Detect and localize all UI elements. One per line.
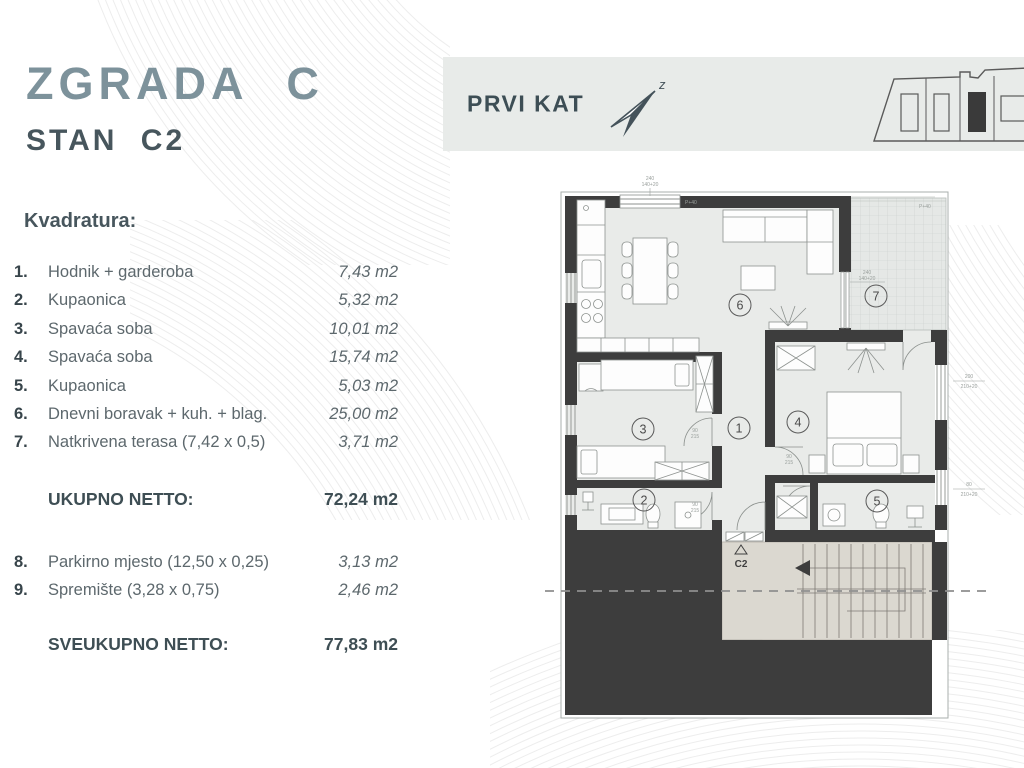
room-area: 5,03 m2 (338, 377, 398, 396)
room-name: Parkirno mjesto (12,50 x 0,25) (48, 553, 338, 572)
room-name: Natkrivena terasa (7,42 x 0,5) (48, 433, 338, 452)
floor-label: PRVI KAT (467, 91, 584, 118)
mirror-2 (583, 492, 593, 502)
washer-5 (823, 504, 845, 526)
room-area: 10,01 m2 (329, 320, 398, 339)
svg-text:6: 6 (737, 299, 744, 313)
room-number: 4. (14, 348, 48, 367)
svg-text:215: 215 (691, 434, 700, 440)
room-name: Kupaonica (48, 291, 338, 310)
room-number: 7. (14, 433, 48, 452)
room-area: 15,74 m2 (329, 348, 398, 367)
net-total-value: 72,24 m2 (324, 489, 398, 510)
room-name: Spremište (3,28 x 0,75) (48, 581, 338, 600)
room-area: 2,46 m2 (338, 581, 398, 600)
svg-text:1: 1 (736, 422, 743, 436)
highlighted-unit-window (968, 92, 986, 132)
svg-text:P+40: P+40 (919, 204, 931, 210)
room-name: Kupaonica (48, 377, 338, 396)
room-area: 5,32 m2 (338, 291, 398, 310)
apartment-title: STAN C2 (26, 124, 398, 158)
coffee-table (741, 266, 775, 290)
floor-header-band: PRVI KAT z (443, 57, 1024, 151)
svg-text:5: 5 (874, 495, 881, 509)
room-name: Hodnik + garderoba (48, 263, 338, 282)
svg-text:140+20: 140+20 (642, 182, 659, 188)
floor-plan: C2 1 2 3 4 5 6 7 240 140+20 240 140+20 2… (545, 170, 1024, 730)
north-arrow-icon: z (593, 69, 673, 149)
svg-text:210+20: 210+20 (961, 492, 978, 498)
north-letter: z (658, 77, 666, 92)
room-list: 1. Hodnik + garderoba 7,43 m2 2. Kupaoni… (14, 263, 398, 462)
room-row: 7. Natkrivena terasa (7,42 x 0,5) 3,71 m… (14, 433, 398, 461)
room-name: Spavaća soba (48, 320, 329, 339)
extra-row: 9. Spremište (3,28 x 0,75) 2,46 m2 (14, 581, 398, 609)
room-row: 3. Spavaća soba 10,01 m2 (14, 320, 398, 348)
room-area: 3,71 m2 (338, 433, 398, 452)
room-name: Spavaća soba (48, 348, 329, 367)
desk (579, 364, 603, 391)
svg-text:215: 215 (785, 460, 794, 466)
room-area: 25,00 m2 (329, 405, 398, 424)
entrance-label: C2 (735, 559, 748, 570)
net-total-label: UKUPNO NETTO: (48, 489, 324, 510)
grand-total-value: 77,83 m2 (324, 634, 398, 655)
svg-text:2: 2 (641, 494, 648, 508)
svg-text:210+20: 210+20 (961, 384, 978, 390)
room-name: Dnevni boravak + kuh. + blag. (48, 405, 329, 424)
svg-text:200: 200 (965, 374, 974, 380)
room-number: 2. (14, 291, 48, 310)
sink-5 (907, 506, 923, 518)
room-area: 3,13 m2 (338, 553, 398, 572)
room-number: 3. (14, 320, 48, 339)
svg-text:7: 7 (873, 290, 880, 304)
room-number: 1. (14, 263, 48, 282)
dining-table (633, 238, 667, 304)
room-number: 5. (14, 377, 48, 396)
building-icon (868, 65, 1024, 149)
svg-text:3: 3 (640, 423, 647, 437)
room-area: 7,43 m2 (338, 263, 398, 282)
room-row: 1. Hodnik + garderoba 7,43 m2 (14, 263, 398, 291)
room-number: 9. (14, 581, 48, 600)
svg-text:80: 80 (966, 482, 972, 488)
extra-row: 8. Parkirno mjesto (12,50 x 0,25) 3,13 m… (14, 553, 398, 581)
room-row: 6. Dnevni boravak + kuh. + blag. 25,00 m… (14, 405, 398, 433)
kitchen-sink (582, 260, 601, 288)
extras-list: 8. Parkirno mjesto (12,50 x 0,25) 3,13 m… (14, 553, 398, 610)
building-title: ZGRADA C (26, 58, 398, 110)
room-row: 2. Kupaonica 5,32 m2 (14, 291, 398, 319)
area-section-label: Kvadratura: (24, 210, 398, 233)
svg-text:P+40: P+40 (685, 200, 697, 206)
kitchen-cabinets (577, 338, 699, 352)
room-number: 6. (14, 405, 48, 424)
grand-total-row: SVEUKUPNO NETTO: 77,83 m2 (14, 634, 398, 655)
room-number: 8. (14, 553, 48, 572)
terrace-floor (847, 198, 946, 330)
svg-text:4: 4 (795, 416, 802, 430)
room-row: 5. Kupaonica 5,03 m2 (14, 377, 398, 405)
grand-total-label: SVEUKUPNO NETTO: (48, 634, 324, 655)
svg-text:140+20: 140+20 (859, 276, 876, 282)
room-row: 4. Spavaća soba 15,74 m2 (14, 348, 398, 376)
net-total-row: UKUPNO NETTO: 72,24 m2 (14, 489, 398, 510)
nightstand-left (809, 455, 825, 473)
svg-text:215: 215 (691, 508, 700, 514)
nightstand-right (903, 455, 919, 473)
info-panel: ZGRADA C STAN C2 Kvadratura: 1. Hodnik +… (14, 58, 398, 655)
